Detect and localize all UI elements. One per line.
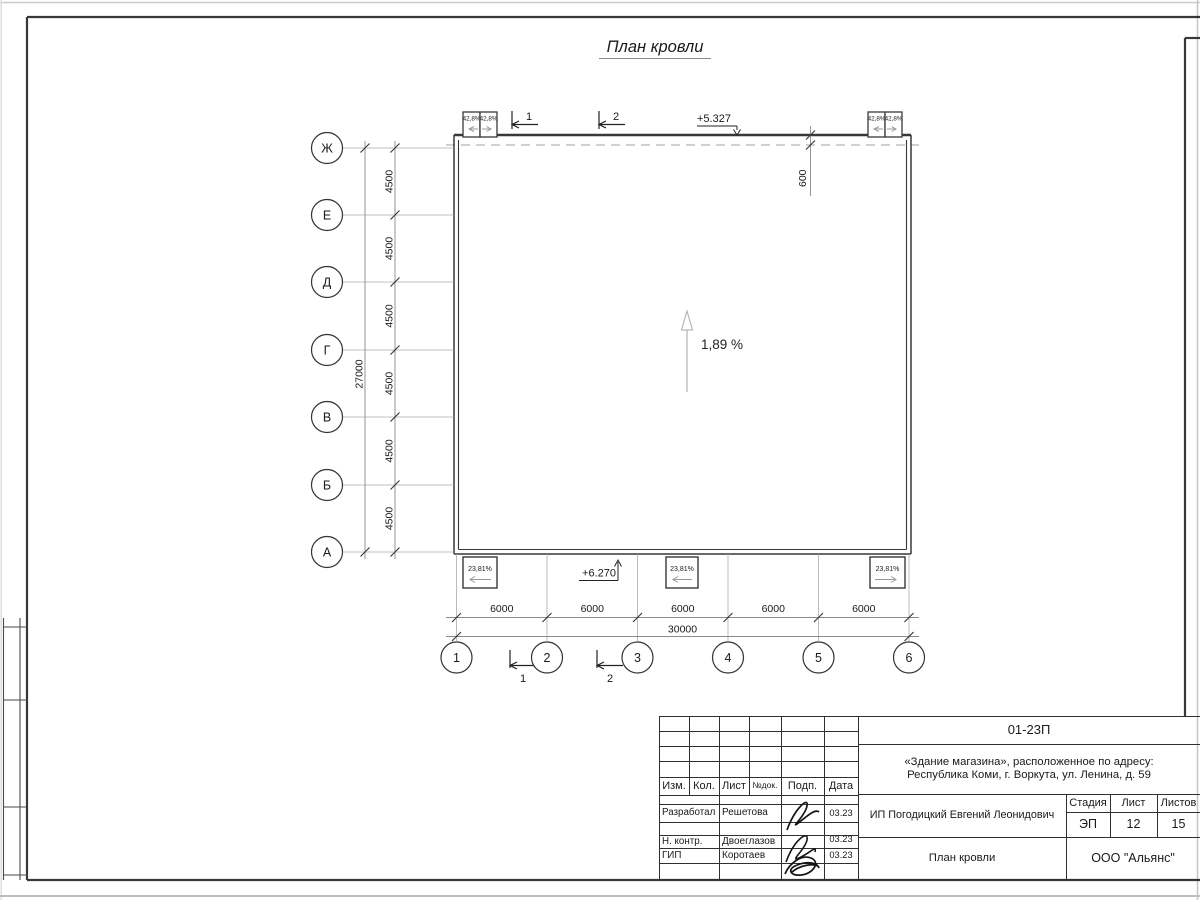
dim-row-label: 4500 xyxy=(384,304,396,328)
role-date: 03.23 xyxy=(824,804,858,822)
dim-row-label: 4500 xyxy=(384,439,396,463)
elevation-mark-top: +5.327 xyxy=(697,113,741,135)
header-izm: Изм. xyxy=(659,777,689,795)
overhang-value: 600 xyxy=(797,169,809,187)
role-label: Н. контр. xyxy=(659,835,722,848)
stage-label: Стадия xyxy=(1066,794,1110,812)
slope-label: 23,81% xyxy=(670,566,694,573)
axis-col-label: 1 xyxy=(453,651,460,665)
left-dimensions: 4500 4500 4500 4500 4500 4500 27000 xyxy=(343,141,454,559)
slope-label: 23,81% xyxy=(876,566,900,573)
dim-col-label: 6000 xyxy=(762,603,786,615)
dim-row-label: 4500 xyxy=(384,237,396,261)
axis-row-label: В xyxy=(323,411,331,425)
axis-row-label: А xyxy=(323,546,332,560)
dim-col-total: 30000 xyxy=(668,624,697,636)
dim-col-label: 6000 xyxy=(490,603,514,615)
titleblock-line xyxy=(659,795,858,796)
axis-col-label: 2 xyxy=(544,651,551,665)
axis-col-label: 5 xyxy=(815,651,822,665)
axis-row-label: Д xyxy=(323,276,332,290)
section-number: 2 xyxy=(607,673,613,685)
slope-direction-arrows xyxy=(469,127,896,132)
overhang-dimension: 600 xyxy=(797,126,815,196)
section-number: 1 xyxy=(526,111,532,123)
signature-gip xyxy=(785,857,819,875)
stage-value: ЭП xyxy=(1066,812,1110,837)
drawing-title-text: План кровли xyxy=(599,38,712,59)
section-markers xyxy=(510,111,625,669)
roof-outline xyxy=(446,135,919,554)
title-block: Изм. Кол. Лист №док. Подп. Дата Разработ… xyxy=(659,716,1200,880)
role-label: Разработал xyxy=(659,804,722,822)
header-podp: Подп. xyxy=(781,777,824,795)
elevation-mark-bottom: +6.270 xyxy=(579,560,622,581)
elevation-value: +5.327 xyxy=(697,113,731,125)
dim-col-label: 6000 xyxy=(581,603,605,615)
axis-row-label: Ж xyxy=(321,142,333,156)
sheets-value: 15 xyxy=(1157,812,1200,837)
role-date: 03.23 xyxy=(824,833,858,846)
titleblock-line xyxy=(659,863,858,864)
header-ndok: №док. xyxy=(749,777,781,795)
header-kol: Кол. xyxy=(689,777,719,795)
section-number: 2 xyxy=(613,111,619,123)
role-name: Решетова xyxy=(719,804,784,822)
dim-row-label: 4500 xyxy=(384,372,396,396)
company-name: ООО "Альянс" xyxy=(1066,837,1200,879)
project-address-line2: Республика Коми, г. Воркута, ул. Ленина,… xyxy=(907,769,1151,782)
titleblock-line xyxy=(659,822,858,823)
dim-row-label: 4500 xyxy=(384,507,396,531)
drawing-title: План кровли xyxy=(545,38,765,57)
axis-col-label: 6 xyxy=(906,651,913,665)
role-date: 03.23 xyxy=(824,848,858,863)
project-address: «Здание магазина», расположенное по адре… xyxy=(858,744,1200,794)
dim-row-total: 27000 xyxy=(354,359,366,388)
slope-main-label: 1,89 % xyxy=(701,337,743,352)
client-name: ИП Погодицкий Евгений Леонидович xyxy=(858,794,1066,837)
axis-row-label: Е xyxy=(323,209,331,223)
sheet-value: 12 xyxy=(1110,812,1157,837)
project-code: 01-23П xyxy=(858,716,1200,744)
dim-col-label: 6000 xyxy=(671,603,695,615)
elevation-value: +6.270 xyxy=(582,568,616,580)
roof-funnels-bottom: 23,81% 23,81% 23,81% xyxy=(463,557,905,588)
slope-label: 42,8% xyxy=(885,116,903,123)
axis-col-label: 4 xyxy=(725,651,732,665)
slope-arrow-main: 1,89 % xyxy=(682,311,744,392)
signature-razrabotal xyxy=(787,802,819,830)
project-address-line1: «Здание магазина», расположенное по адре… xyxy=(904,756,1153,769)
axis-row-label: Б xyxy=(323,479,331,493)
role-name: Двоеглазов xyxy=(719,835,784,848)
section-number: 1 xyxy=(520,673,526,685)
dim-col-label: 6000 xyxy=(852,603,876,615)
sheet-label: Лист xyxy=(1110,794,1157,812)
drawing-name: План кровли xyxy=(858,837,1066,879)
role-label: ГИП xyxy=(659,848,722,863)
axis-row-circles: Ж Е Д Г В Б А xyxy=(312,133,343,568)
axis-col-label: 3 xyxy=(634,651,641,665)
role-name: Коротаев xyxy=(719,848,784,863)
axis-col-circles: 1 2 3 4 5 6 xyxy=(441,642,925,673)
dim-row-label: 4500 xyxy=(384,170,396,194)
slope-label: 42,8% xyxy=(463,116,481,123)
left-margin-strip xyxy=(4,618,28,880)
slope-label: 42,8% xyxy=(480,116,498,123)
axis-row-label: Г xyxy=(324,344,331,358)
sheets-label: Листов xyxy=(1157,794,1200,812)
slope-label: 42,8% xyxy=(868,116,886,123)
header-list: Лист xyxy=(719,777,749,795)
header-data: Дата xyxy=(824,777,858,795)
slope-label: 23,81% xyxy=(468,566,492,573)
